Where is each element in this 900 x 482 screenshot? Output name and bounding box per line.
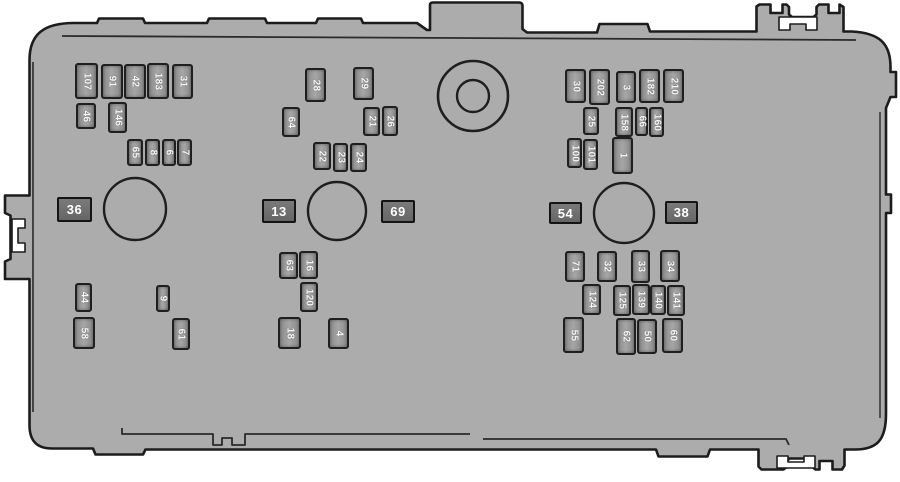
fuse-number: 34: [664, 260, 675, 272]
fuse-183: 183: [147, 63, 169, 99]
fuse-number: 107: [81, 72, 92, 90]
fuse-64: 64: [282, 107, 300, 137]
fuse-number: 63: [283, 260, 294, 272]
fuse-210: 210: [663, 69, 684, 103]
fuse-number: 24: [353, 152, 364, 164]
fuse-139: 139: [632, 284, 650, 315]
fuse-number: 23: [335, 152, 346, 164]
fuse-number: 32: [601, 261, 612, 273]
fuse-9: 9: [156, 285, 170, 312]
fuse-33: 33: [631, 250, 650, 283]
fuse-32: 32: [597, 251, 617, 282]
fuse-number: 25: [585, 115, 596, 127]
fuse-71: 71: [565, 251, 585, 282]
plate-number: 13: [271, 204, 286, 219]
fuse-number: 100: [569, 144, 580, 162]
fuse-58: 58: [73, 317, 95, 349]
fuse-44: 44: [75, 283, 92, 312]
fuse-number: 66: [636, 116, 647, 128]
fuse-number: 16: [303, 259, 314, 271]
fuse-number: 140: [653, 291, 664, 309]
fuse-55: 55: [563, 317, 584, 353]
fuse-number: 4: [333, 331, 344, 337]
fuse-layer: 1079142183314614665867282964212622232430…: [0, 0, 900, 482]
fuse-number: 120: [304, 288, 315, 306]
fuse-34: 34: [660, 250, 680, 282]
fuse-31: 31: [172, 64, 193, 99]
fuse-140: 140: [650, 285, 666, 315]
fuse-158: 158: [615, 107, 633, 137]
fuse-62: 62: [616, 318, 636, 355]
fuse-number: 22: [316, 150, 327, 162]
fuse-number: 33: [635, 261, 646, 273]
fuse-number: 30: [570, 80, 581, 92]
fuse-202: 202: [589, 69, 610, 105]
plate-54: 54: [549, 202, 582, 224]
fuse-60: 60: [662, 318, 683, 353]
fuse-number: 6: [164, 150, 175, 156]
fuse-number: 210: [668, 77, 679, 95]
fuse-number: 7: [179, 150, 190, 156]
fuse-number: 46: [80, 110, 91, 122]
fuse-number: 44: [78, 292, 89, 304]
fuse-number: 55: [568, 329, 579, 341]
fuse-number: 183: [153, 72, 164, 90]
fuse-number: 26: [384, 115, 395, 127]
fuse-number: 31: [177, 76, 188, 88]
fuse-number: 158: [619, 113, 630, 131]
fuse-1: 1: [612, 137, 633, 174]
fuse-65: 65: [127, 139, 143, 166]
plate-number: 38: [674, 205, 689, 220]
fuse-91: 91: [101, 64, 123, 99]
fuse-number: 62: [620, 331, 631, 343]
fuse-124: 124: [582, 284, 601, 315]
fuse-number: 125: [617, 292, 628, 310]
fuse-number: 61: [175, 328, 186, 340]
fuse-29: 29: [353, 67, 374, 100]
fuse-24: 24: [350, 143, 367, 172]
fuse-182: 182: [639, 69, 660, 103]
fuse-number: 42: [129, 76, 140, 88]
fuse-number: 71: [569, 261, 580, 273]
plate-36: 36: [57, 197, 92, 222]
fuse-28: 28: [305, 68, 326, 102]
fuse-22: 22: [313, 142, 331, 170]
fuse-number: 18: [284, 327, 295, 339]
fuse-number: 28: [310, 79, 321, 91]
fuse-number: 182: [644, 77, 655, 95]
fuse-16: 16: [299, 251, 318, 279]
fuse-107: 107: [75, 63, 98, 99]
plate-number: 54: [558, 206, 573, 221]
plate-number: 36: [67, 202, 82, 217]
plate-69: 69: [381, 200, 415, 223]
fuse-number: 141: [671, 292, 682, 310]
fuse-number: 65: [129, 147, 140, 159]
fuse-number: 50: [641, 331, 652, 343]
fuse-number: 64: [285, 116, 296, 128]
fuse-number: 3: [621, 84, 632, 90]
plate-38: 38: [665, 201, 698, 224]
fuse-number: 8: [147, 150, 158, 156]
fuse-100: 100: [567, 138, 582, 168]
fuse-number: 1: [617, 153, 628, 159]
fuse-160: 160: [649, 107, 664, 137]
fuse-25: 25: [583, 107, 599, 135]
fuse-number: 9: [158, 296, 169, 302]
fuse-number: 124: [586, 291, 597, 309]
fuse-21: 21: [363, 107, 380, 136]
fuse-number: 21: [366, 116, 377, 128]
fuse-number: 160: [651, 113, 662, 131]
fuse-30: 30: [565, 69, 586, 103]
fuse-66: 66: [635, 107, 648, 136]
fuse-6: 6: [162, 139, 176, 166]
fuse-7: 7: [177, 139, 192, 166]
fuse-141: 141: [667, 285, 685, 316]
fuse-120: 120: [300, 282, 318, 312]
fuse-63: 63: [279, 252, 298, 279]
fuse-61: 61: [172, 318, 190, 350]
fuse-4: 4: [328, 318, 349, 349]
fuse-42: 42: [124, 64, 146, 99]
fuse-46: 46: [76, 103, 96, 129]
fuse-3: 3: [616, 71, 636, 103]
fuse-26: 26: [382, 106, 398, 136]
fuse-125: 125: [613, 285, 631, 316]
fuse-23: 23: [333, 143, 348, 172]
fuse-number: 91: [106, 76, 117, 88]
fuse-number: 101: [585, 146, 596, 164]
fuse-146: 146: [108, 102, 127, 133]
plate-number: 69: [390, 204, 405, 219]
fuse-8: 8: [145, 139, 160, 166]
plate-13: 13: [262, 199, 296, 223]
fuse-box-diagram: 1079142183314614665867282964212622232430…: [0, 0, 900, 482]
fuse-18: 18: [278, 317, 301, 349]
fuse-number: 146: [112, 109, 123, 127]
fuse-number: 29: [358, 78, 369, 90]
fuse-101: 101: [583, 139, 598, 170]
fuse-50: 50: [637, 319, 657, 354]
fuse-number: 202: [594, 78, 605, 96]
fuse-number: 60: [667, 330, 678, 342]
fuse-number: 58: [78, 327, 89, 339]
fuse-number: 139: [636, 291, 647, 309]
